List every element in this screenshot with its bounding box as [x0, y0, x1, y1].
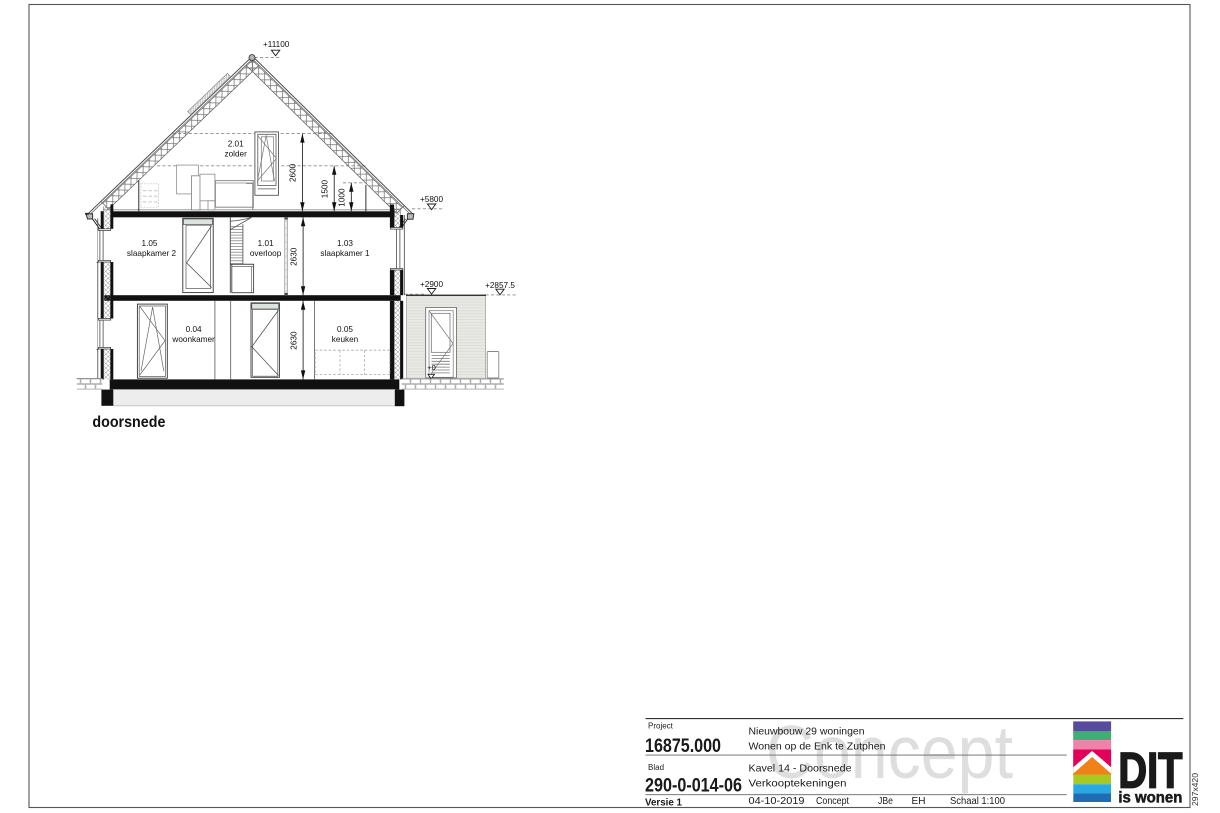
- svg-text:1.05: 1.05: [142, 239, 158, 248]
- svg-text:0.05: 0.05: [337, 325, 353, 334]
- svg-text:297x420: 297x420: [1191, 772, 1200, 806]
- svg-text:1.01: 1.01: [258, 239, 274, 248]
- svg-text:2600: 2600: [289, 163, 298, 182]
- svg-text:slaapkamer 2: slaapkamer 2: [127, 249, 177, 258]
- svg-text:is wonen: is wonen: [1118, 789, 1182, 806]
- svg-text:Project: Project: [648, 722, 674, 731]
- svg-text:zolder: zolder: [225, 149, 248, 158]
- svg-text:woonkamer: woonkamer: [171, 335, 215, 344]
- svg-text:1000: 1000: [338, 188, 347, 207]
- svg-text:keuken: keuken: [332, 335, 359, 344]
- svg-text:1.03: 1.03: [337, 239, 353, 248]
- svg-text:+2900: +2900: [420, 280, 443, 289]
- svg-text:04-10-2019: 04-10-2019: [749, 796, 805, 807]
- svg-text:Versie 1: Versie 1: [645, 797, 682, 809]
- svg-text:Kavel 14 - Doorsnede: Kavel 14 - Doorsnede: [749, 763, 852, 775]
- svg-text:2630: 2630: [289, 247, 298, 266]
- svg-text:Concept: Concept: [816, 796, 849, 807]
- svg-text:slaapkamer 1: slaapkamer 1: [320, 249, 370, 258]
- svg-text:Wonen op de Enk te Zutphen: Wonen op de Enk te Zutphen: [749, 741, 886, 753]
- svg-text:2.01: 2.01: [228, 139, 244, 148]
- svg-text:Schaal 1:100: Schaal 1:100: [950, 796, 1005, 807]
- svg-text:+11100: +11100: [263, 40, 290, 49]
- svg-text:16875.000: 16875.000: [645, 736, 721, 757]
- svg-text:290-0-014-06: 290-0-014-06: [645, 776, 742, 797]
- svg-text:+0: +0: [427, 363, 435, 372]
- svg-text:Nieuwbouw 29 woningen: Nieuwbouw 29 woningen: [749, 726, 865, 738]
- svg-text:overloop: overloop: [250, 249, 282, 258]
- svg-text:+2857.5: +2857.5: [485, 281, 515, 290]
- svg-text:EH: EH: [912, 796, 926, 807]
- svg-text:1500: 1500: [320, 180, 329, 199]
- svg-text:+5800: +5800: [420, 195, 443, 204]
- svg-text:JBe: JBe: [878, 796, 893, 807]
- svg-text:0.04: 0.04: [186, 325, 202, 334]
- svg-text:doorsnede: doorsnede: [92, 414, 165, 431]
- svg-text:Verkooptekeningen: Verkooptekeningen: [749, 778, 847, 790]
- svg-text:2630: 2630: [289, 331, 298, 350]
- svg-text:Blad: Blad: [648, 763, 664, 772]
